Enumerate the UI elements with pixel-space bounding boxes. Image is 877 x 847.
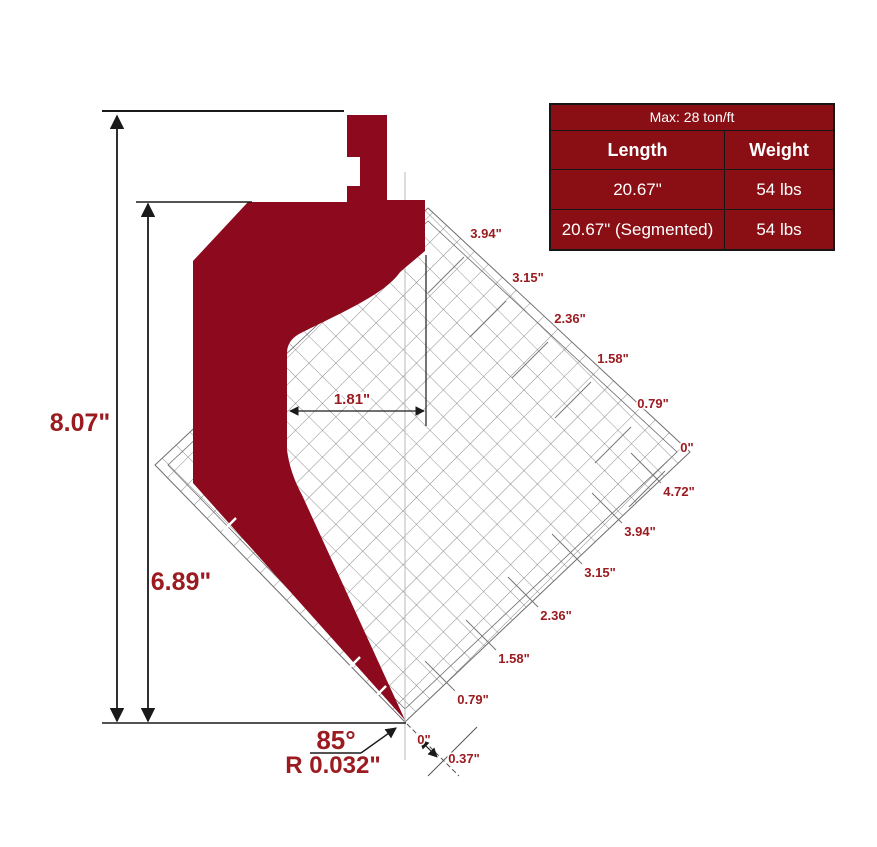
lower-ruler-label: 3.15" <box>584 565 615 580</box>
upper-ruler-label: 2.36" <box>554 311 585 326</box>
upper-ruler-label: 3.15" <box>512 270 543 285</box>
column-header-weight: Weight <box>725 131 833 169</box>
lower-ruler-label: 4.72" <box>663 484 694 499</box>
max-tonnage-banner: Max: 28 ton/ft <box>551 105 833 131</box>
lower-ruler-label: 0.79" <box>457 692 488 707</box>
weight-value: 54 lbs <box>725 210 833 249</box>
length-value: 20.67" (Segmented) <box>551 210 725 249</box>
working-height-label: 6.89" <box>151 568 212 596</box>
angle-leader-line <box>361 728 396 753</box>
zero-mark-label: 0" <box>417 732 430 747</box>
column-header-length: Length <box>551 131 725 169</box>
lower-ruler-label: 3.94" <box>624 524 655 539</box>
spec-table-header: Length Weight <box>551 131 833 170</box>
tip-offset-label: 0.37" <box>448 751 479 766</box>
tip-angle-label: 85° <box>316 725 355 755</box>
table-row: 20.67" (Segmented) 54 lbs <box>551 209 833 249</box>
overall-height-label: 8.07" <box>50 409 111 437</box>
lower-ruler-label: 2.36" <box>540 608 571 623</box>
weight-value: 54 lbs <box>725 170 833 209</box>
upper-ruler-label: 1.58" <box>597 351 628 366</box>
upper-ruler-label: 0" <box>680 440 693 455</box>
length-value: 20.67" <box>551 170 725 209</box>
lower-ruler-label: 1.58" <box>498 651 529 666</box>
throat-depth-label: 1.81" <box>334 391 370 408</box>
tip-zero-dashed-line <box>407 724 459 776</box>
table-row: 20.67" 54 lbs <box>551 170 833 209</box>
punch-spec-sheet: { "table": { "title": "Max: 28 ton/ft", … <box>0 0 877 847</box>
spec-table: Max: 28 ton/ft Length Weight 20.67" 54 l… <box>549 103 835 251</box>
upper-ruler-label: 0.79" <box>637 396 668 411</box>
tip-radius-label: R 0.032" <box>285 752 380 779</box>
upper-ruler-label: 3.94" <box>470 226 501 241</box>
